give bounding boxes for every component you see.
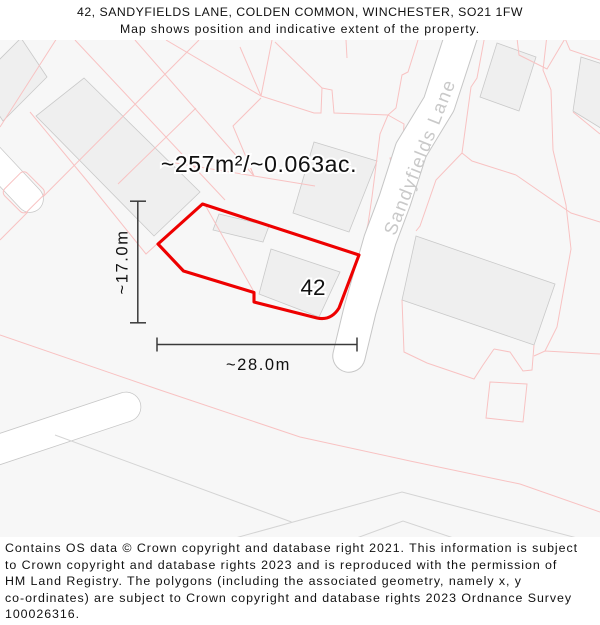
svg-text:~17.0m: ~17.0m xyxy=(114,229,132,294)
svg-text:~28.0m: ~28.0m xyxy=(226,356,291,374)
svg-text:42: 42 xyxy=(300,275,325,300)
svg-text:~257m²/~0.063ac.: ~257m²/~0.063ac. xyxy=(161,151,357,177)
